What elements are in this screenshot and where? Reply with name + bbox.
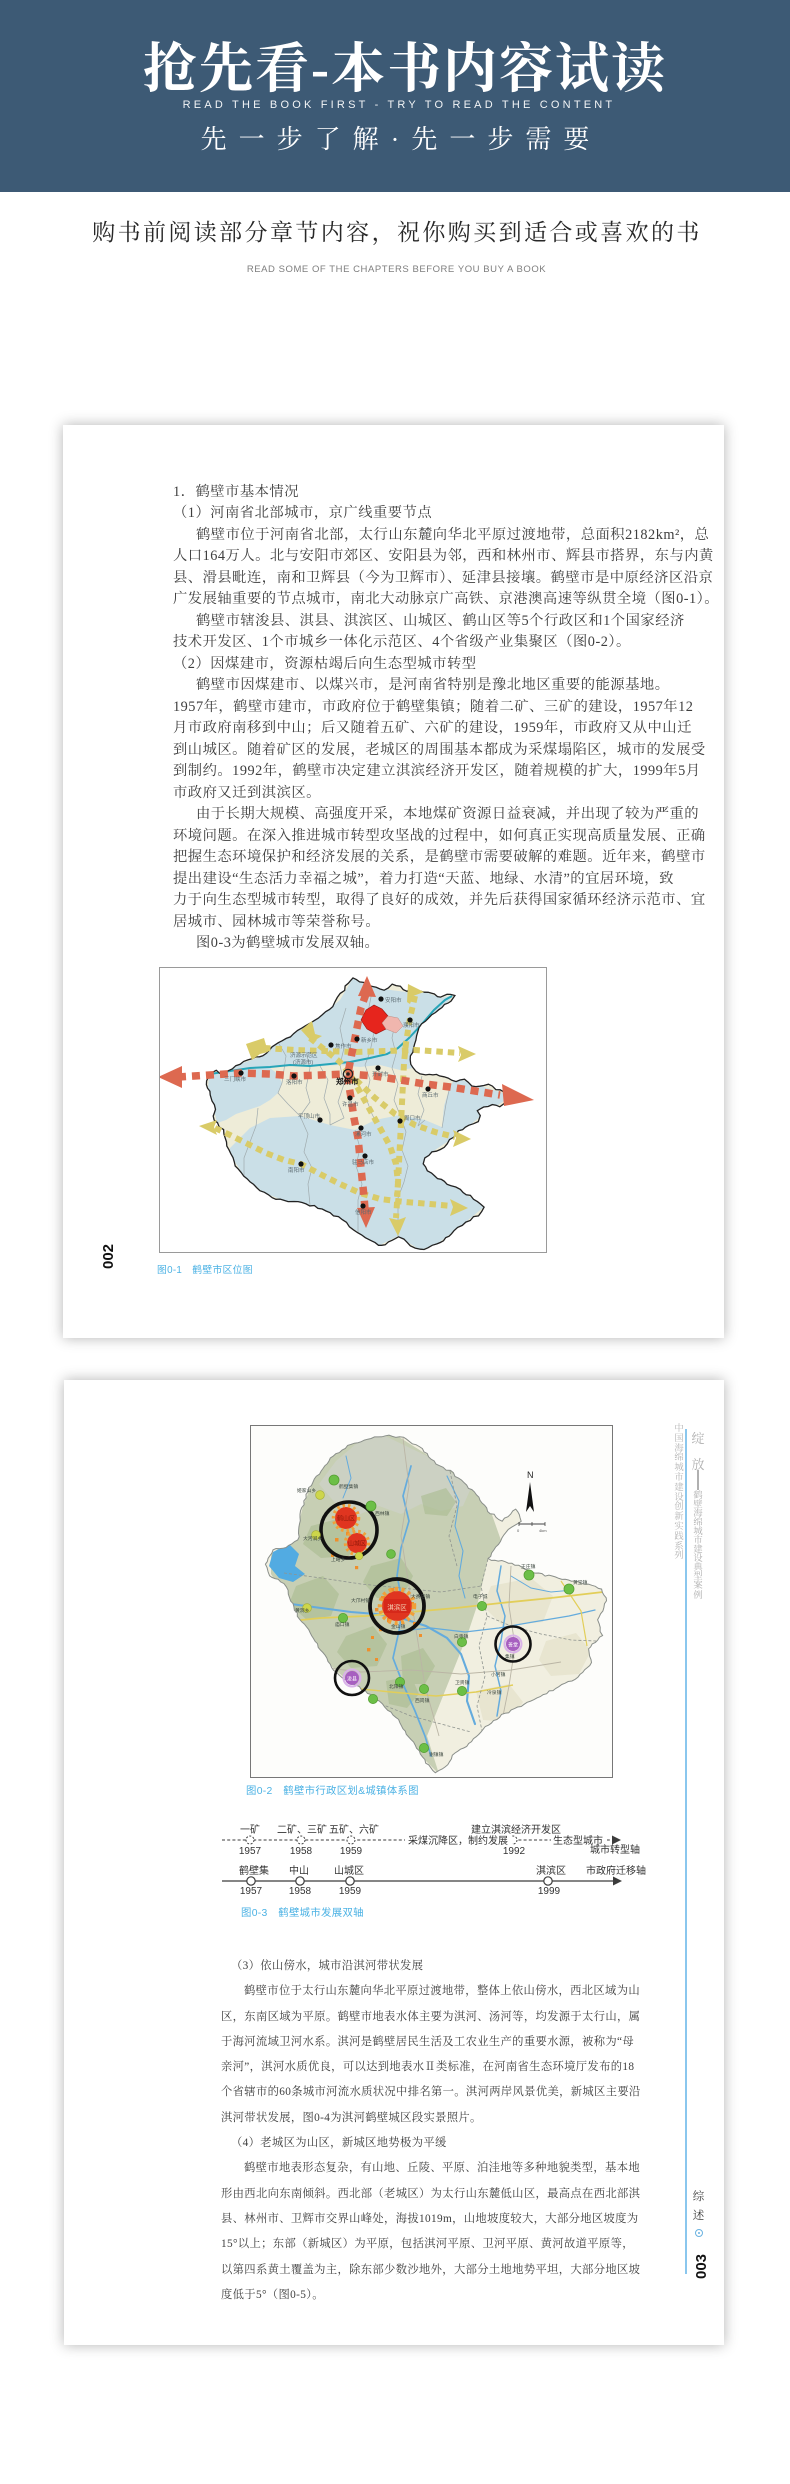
svg-text:谢镇镇: 谢镇镇 [429, 1751, 444, 1758]
svg-text:平顶山市: 平顶山市 [298, 1112, 321, 1120]
svg-text:五矿、六矿: 五矿、六矿 [329, 1823, 379, 1836]
svg-text:电子城: 电子城 [473, 1593, 488, 1600]
svg-text:二矿、三矿: 二矿、三矿 [277, 1823, 327, 1836]
svg-text:许昌市: 许昌市 [342, 1100, 359, 1108]
svg-text:大赉店镇: 大赉店镇 [411, 1593, 430, 1600]
svg-text:濮阳市: 濮阳市 [403, 1021, 420, 1029]
svg-text:市政府迁移轴: 市政府迁移轴 [586, 1864, 646, 1877]
svg-text:1992: 1992 [503, 1846, 526, 1857]
svg-text:采煤沉降区，制约发展: 采煤沉降区，制约发展 [408, 1834, 508, 1847]
svg-text:洛阳市: 洛阳市 [286, 1078, 303, 1086]
svg-text:鹤壁集: 鹤壁集 [239, 1864, 269, 1877]
svg-text:山城区: 山城区 [334, 1865, 364, 1877]
svg-text:淇滨区: 淇滨区 [387, 1603, 407, 1612]
svg-text:集镇: 集镇 [505, 1653, 515, 1660]
svg-text:三门峡市: 三门峡市 [224, 1075, 247, 1083]
svg-text:济源示范区: 济源示范区 [290, 1051, 318, 1059]
svg-text:王庄镇: 王庄镇 [521, 1563, 536, 1570]
svg-text:大邝村镇: 大邝村镇 [351, 1597, 370, 1604]
svg-text:1959: 1959 [340, 1846, 363, 1857]
svg-text:城市转型轴: 城市转型轴 [590, 1843, 640, 1856]
svg-text:一矿: 一矿 [240, 1823, 260, 1836]
svg-text:商丘市: 商丘市 [422, 1091, 439, 1099]
svg-text:(济源市): (济源市) [293, 1058, 313, 1066]
svg-text:善堂: 善堂 [508, 1642, 518, 1649]
svg-text:信阳市: 信阳市 [355, 1208, 372, 1216]
svg-text:郑州市: 郑州市 [336, 1076, 359, 1086]
svg-text:鹤壁集镇: 鹤壁集镇 [339, 1483, 358, 1490]
svg-text:庙口镇: 庙口镇 [335, 1621, 350, 1628]
svg-text:漯河市: 漯河市 [355, 1130, 372, 1138]
svg-text:驻马店市: 驻马店市 [352, 1158, 375, 1166]
svg-text:黄洞乡: 黄洞乡 [295, 1607, 310, 1614]
svg-text:山城区: 山城区 [348, 1540, 366, 1548]
svg-text:4km: 4km [539, 1528, 547, 1533]
svg-text:北阳镇: 北阳镇 [389, 1683, 404, 1690]
svg-text:中山: 中山 [289, 1864, 309, 1877]
svg-text:姬家山乡: 姬家山乡 [297, 1487, 316, 1494]
svg-text:卫贤镇: 卫贤镇 [455, 1679, 470, 1686]
svg-text:周口市: 周口市 [404, 1114, 421, 1122]
svg-text:淇滨区: 淇滨区 [536, 1864, 566, 1877]
svg-text:安阳市: 安阳市 [385, 996, 402, 1004]
svg-text:1999: 1999 [538, 1886, 561, 1897]
svg-text:N: N [527, 1470, 534, 1480]
svg-text:西岗镇: 西岗镇 [415, 1697, 430, 1704]
svg-text:冷泉镇: 冷泉镇 [487, 1689, 502, 1696]
svg-text:小河镇: 小河镇 [491, 1671, 506, 1678]
svg-text:焦作市: 焦作市 [335, 1042, 352, 1050]
svg-text:金山镇: 金山镇 [391, 1623, 406, 1630]
svg-text:上峪乡: 上峪乡 [331, 1556, 346, 1563]
svg-text:1957: 1957 [240, 1886, 263, 1897]
svg-text:黄堂镇: 黄堂镇 [573, 1579, 588, 1586]
svg-text:新乡市: 新乡市 [361, 1036, 378, 1044]
svg-text:西林镇: 西林镇 [375, 1510, 390, 1517]
svg-text:鹤山区: 鹤山区 [337, 1515, 355, 1523]
svg-text:浚县: 浚县 [347, 1676, 357, 1683]
svg-text:1958: 1958 [290, 1846, 313, 1857]
svg-text:南阳市: 南阳市 [288, 1166, 305, 1174]
svg-text:建立淇滨经济开发区: 建立淇滨经济开发区 [471, 1823, 561, 1836]
svg-text:1957: 1957 [239, 1846, 262, 1857]
svg-text:大河涧乡: 大河涧乡 [303, 1535, 322, 1542]
svg-text:1958: 1958 [289, 1886, 312, 1897]
svg-text:1959: 1959 [339, 1886, 362, 1897]
svg-text:开封市: 开封市 [372, 1070, 389, 1078]
svg-text:0: 0 [517, 1528, 520, 1533]
svg-text:白寺镇: 白寺镇 [454, 1633, 469, 1640]
